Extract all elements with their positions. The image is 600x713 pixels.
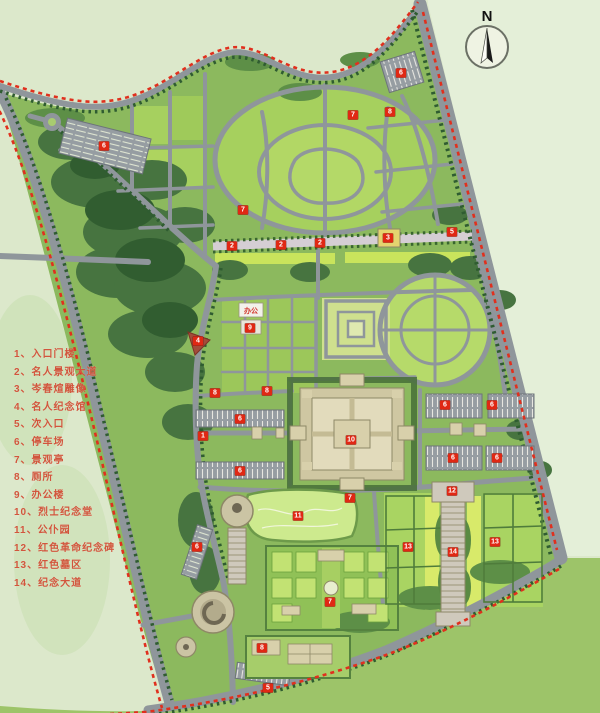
bottom-courtyard <box>246 636 350 678</box>
legend-item: 2、名人景观大道 <box>14 364 115 382</box>
site-plan-page: 办公 N 66787222354988166666610711612131314… <box>0 0 600 713</box>
legend-item: 5、次入口 <box>14 416 115 434</box>
legend-item: 10、烈士纪念堂 <box>14 504 115 522</box>
legend-item: 8、厕所 <box>14 469 115 487</box>
garden-complex <box>266 546 398 630</box>
legend-item: 11、公仆园 <box>14 522 115 540</box>
south-lawn <box>245 490 357 542</box>
legend: 1、入口门楼2、名人景观大道3、岑春煊雕像4、名人纪念馆5、次入口6、停车场7、… <box>14 346 115 592</box>
legend-item: 12、红色革命纪念碑 <box>14 540 115 558</box>
legend-item: 1、入口门楼 <box>14 346 115 364</box>
legend-item: 7、景观亭 <box>14 452 115 470</box>
office-label-group: 办公 <box>244 306 258 315</box>
legend-item: 4、名人纪念馆 <box>14 399 115 417</box>
legend-item: 3、岑春煊雕像 <box>14 381 115 399</box>
legend-item: 13、红色墓区 <box>14 557 115 575</box>
legend-item: 6、停车场 <box>14 434 115 452</box>
office-label: 办公 <box>244 306 258 315</box>
north-label: N <box>482 8 493 25</box>
legend-item: 14、纪念大道 <box>14 575 115 593</box>
legend-item: 9、办公楼 <box>14 487 115 505</box>
roundabout <box>43 113 61 131</box>
